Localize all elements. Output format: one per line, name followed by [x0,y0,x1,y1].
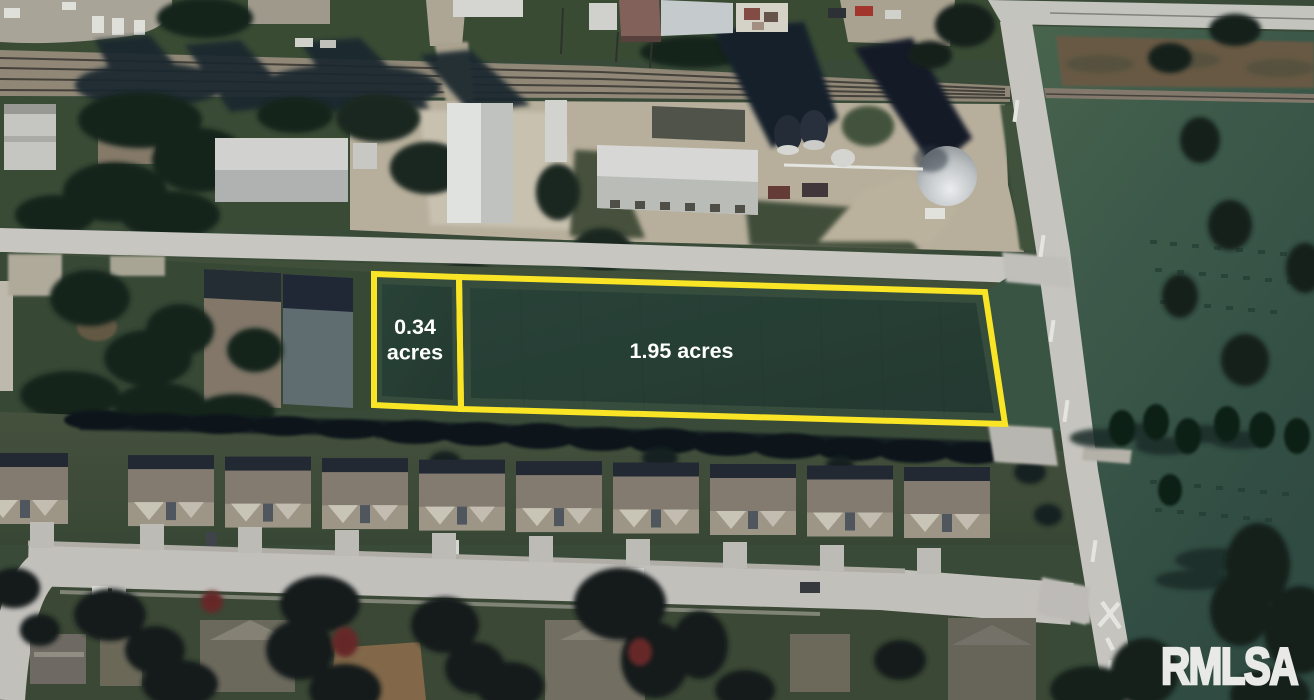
svg-text:RMLSA: RMLSA [1161,638,1298,696]
svg-text:acres: acres [387,341,443,365]
svg-text:1.95 acres: 1.95 acres [629,339,733,363]
svg-text:0.34: 0.34 [394,315,436,339]
